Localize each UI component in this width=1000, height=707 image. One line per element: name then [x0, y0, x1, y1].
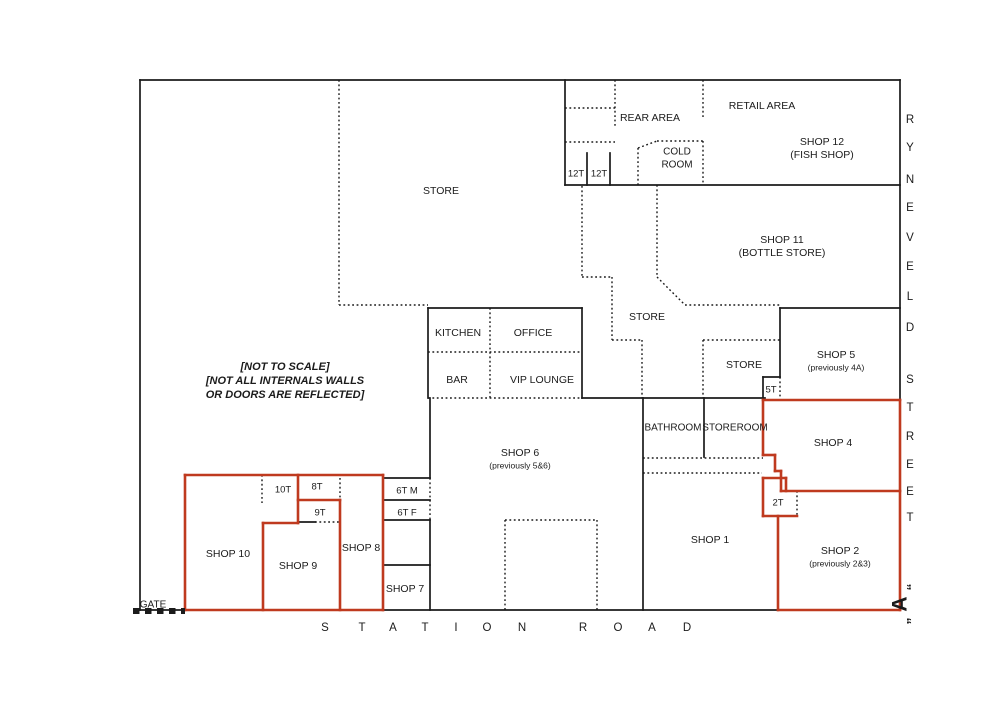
street-bottom-letter-8: O [614, 622, 623, 634]
label-shop-11: SHOP 11 [760, 234, 804, 246]
label-shop-11-sub: (BOTTLE STORE) [739, 247, 826, 259]
label-shop-1: SHOP 1 [691, 534, 729, 546]
label-shop-8: SHOP 8 [342, 542, 380, 554]
label-toilet-12t-a: 12T [568, 169, 585, 180]
street-bottom-letter-7: R [579, 622, 587, 634]
marker-a-open-quote: “ [904, 584, 920, 591]
label-store-main: STORE [423, 185, 459, 197]
street-bottom-letter-4: I [454, 622, 457, 634]
label-cold-room-1: COLD [663, 147, 691, 158]
label-toilet-6t-m: 6T M [396, 486, 418, 497]
label-storeroom: STOREROOM [702, 423, 767, 434]
floor-plan: REAR AREARETAIL AREASHOP 12(FISH SHOP)CO… [0, 0, 1000, 707]
street-right-letter-4: V [906, 232, 914, 244]
street-bottom-letter-3: T [421, 622, 428, 634]
label-bar: BAR [446, 374, 468, 386]
label-toilet-8t: 8T [311, 482, 322, 493]
label-shop-10: SHOP 10 [206, 548, 250, 560]
street-bottom-letter-1: T [358, 622, 365, 634]
street-bottom-letter-10: D [683, 622, 691, 634]
street-right-letter-8: S [906, 374, 914, 386]
street-right-letter-13: T [906, 512, 913, 524]
label-gate-label: GATE [140, 600, 167, 611]
marker-a-close-quote: ” [904, 618, 920, 625]
label-toilet-9t: 9T [314, 508, 325, 519]
street-bottom-letter-9: A [648, 622, 656, 634]
label-cold-room-2: ROOM [661, 160, 692, 171]
street-bottom-letter-6: N [518, 622, 526, 634]
note-line-0: [NOT TO SCALE] [239, 361, 329, 373]
label-shop-6-sub: (previously 5&6) [489, 460, 551, 470]
label-shop-5-sub: (previously 4A) [808, 362, 865, 372]
street-right-letter-3: E [906, 202, 914, 214]
label-shop-7: SHOP 7 [386, 583, 424, 595]
label-toilet-12t-b: 12T [591, 169, 608, 180]
label-shop-4: SHOP 4 [814, 437, 852, 449]
street-bottom-letter-5: O [483, 622, 492, 634]
note-line-1: [NOT ALL INTERNALS WALLS [205, 375, 365, 387]
label-rear-area: REAR AREA [620, 112, 680, 124]
street-right-letter-2: N [906, 174, 914, 186]
street-right-letter-11: E [906, 459, 914, 471]
label-toilet-6t-f: 6T F [397, 508, 417, 519]
marker-a: A [889, 596, 912, 611]
street-right-letter-7: D [906, 322, 914, 334]
label-toilet-2t: 2T [772, 498, 783, 509]
street-right-letter-12: E [906, 486, 914, 498]
label-retail-area: RETAIL AREA [729, 100, 796, 112]
label-shop-5: SHOP 5 [817, 349, 855, 361]
floor-plan-svg: REAR AREARETAIL AREASHOP 12(FISH SHOP)CO… [0, 0, 1000, 707]
label-vip-lounge: VIP LOUNGE [510, 374, 574, 386]
street-right-letter-5: E [906, 261, 914, 273]
street-right-letter-1: Y [906, 142, 914, 154]
label-store-mid: STORE [629, 311, 665, 323]
label-shop-9: SHOP 9 [279, 560, 317, 572]
label-shop-2-sub: (previously 2&3) [809, 558, 871, 568]
label-bathroom: BATHROOM [644, 423, 701, 434]
label-kitchen: KITCHEN [435, 327, 481, 339]
street-right-letter-9: T [906, 402, 913, 414]
street-bottom-letter-2: A [389, 622, 397, 634]
label-shop-6: SHOP 6 [501, 447, 539, 459]
street-right-letter-0: R [906, 114, 914, 126]
label-office: OFFICE [514, 327, 553, 339]
street-right-letter-6: L [907, 291, 914, 303]
label-shop-12-sub: (FISH SHOP) [790, 149, 854, 161]
label-shop-12: SHOP 12 [800, 136, 844, 148]
street-bottom-letter-0: S [321, 622, 329, 634]
street-right-letter-10: R [906, 431, 914, 443]
label-toilet-5t: 5T [765, 385, 776, 396]
label-toilet-10t: 10T [275, 485, 292, 496]
label-store-right: STORE [726, 359, 762, 371]
note-line-2: OR DOORS ARE REFLECTED] [206, 389, 365, 401]
label-shop-2: SHOP 2 [821, 545, 859, 557]
